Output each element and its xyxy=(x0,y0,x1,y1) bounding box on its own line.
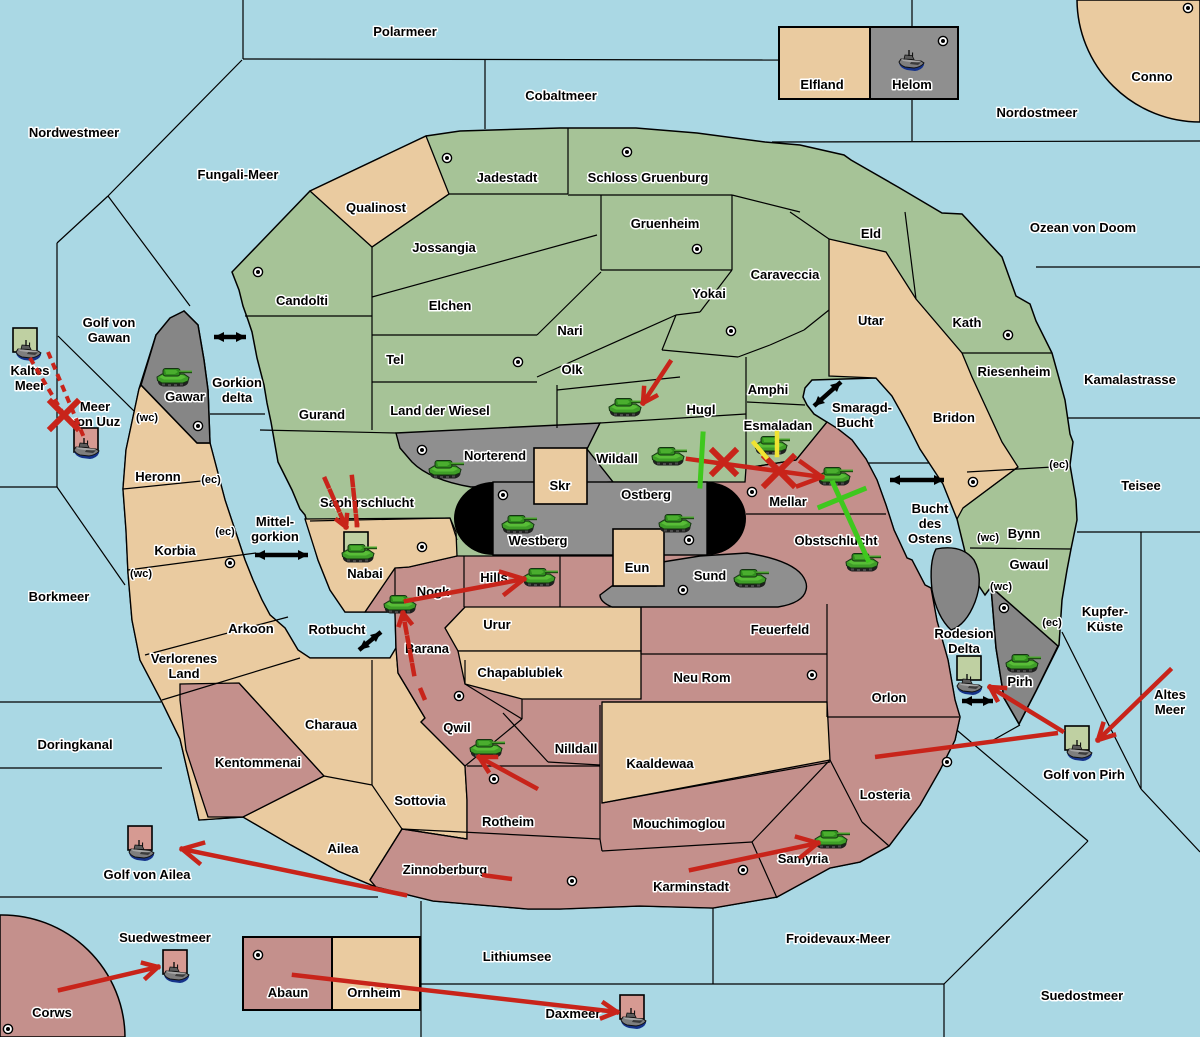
svg-text:Mouchimoglou: Mouchimoglou xyxy=(633,816,725,831)
svg-text:Land der Wiesel: Land der Wiesel xyxy=(390,403,490,418)
svg-text:Kaltes: Kaltes xyxy=(10,363,49,378)
svg-text:Tel: Tel xyxy=(386,352,404,367)
svg-text:gorkion: gorkion xyxy=(251,529,299,544)
svg-text:Bucht: Bucht xyxy=(837,415,875,430)
svg-text:Kupfer-: Kupfer- xyxy=(1082,604,1128,619)
svg-text:Delta: Delta xyxy=(948,641,981,656)
svg-text:Conno: Conno xyxy=(1131,69,1172,84)
svg-text:Smaragd-: Smaragd- xyxy=(832,400,892,415)
svg-text:Gruenheim: Gruenheim xyxy=(631,216,700,231)
svg-text:Meer: Meer xyxy=(15,378,45,393)
svg-text:Kaaldewaa: Kaaldewaa xyxy=(626,756,694,771)
svg-text:Neu Rom: Neu Rom xyxy=(673,670,730,685)
svg-text:(wc): (wc) xyxy=(136,412,158,424)
svg-text:Wildall: Wildall xyxy=(596,451,638,466)
svg-text:Teisee: Teisee xyxy=(1121,478,1161,493)
svg-text:Doringkanal: Doringkanal xyxy=(37,737,112,752)
svg-text:Schloss Gruenburg: Schloss Gruenburg xyxy=(588,170,709,185)
svg-text:Borkmeer: Borkmeer xyxy=(29,589,90,604)
svg-text:Qualinost: Qualinost xyxy=(346,200,407,215)
svg-text:Gurand: Gurand xyxy=(299,407,345,422)
svg-text:Mellar: Mellar xyxy=(769,494,807,509)
svg-text:(wc): (wc) xyxy=(990,581,1012,593)
svg-text:Nari: Nari xyxy=(557,323,582,338)
svg-text:Hugl: Hugl xyxy=(687,402,716,417)
svg-text:Bucht: Bucht xyxy=(912,501,950,516)
svg-text:Froidevaux-Meer: Froidevaux-Meer xyxy=(786,931,890,946)
svg-text:Korbia: Korbia xyxy=(154,543,196,558)
svg-text:Bridon: Bridon xyxy=(933,410,975,425)
svg-text:Rodesion: Rodesion xyxy=(934,626,993,641)
svg-text:(ec): (ec) xyxy=(201,474,221,486)
svg-text:Orlon: Orlon xyxy=(872,690,907,705)
svg-text:Qwil: Qwil xyxy=(443,720,470,735)
svg-text:Chapablublek: Chapablublek xyxy=(477,665,563,680)
svg-text:Nilldall: Nilldall xyxy=(555,741,598,756)
svg-text:Yokai: Yokai xyxy=(692,286,726,301)
svg-text:Amphi: Amphi xyxy=(748,382,788,397)
svg-text:Polarmeer: Polarmeer xyxy=(373,24,437,39)
svg-text:Land: Land xyxy=(168,666,199,681)
svg-text:Caraveccia: Caraveccia xyxy=(751,267,820,282)
svg-text:Urur: Urur xyxy=(483,617,510,632)
svg-text:Nabai: Nabai xyxy=(347,566,382,581)
svg-text:(wc): (wc) xyxy=(977,532,999,544)
svg-text:Gawar: Gawar xyxy=(165,389,205,404)
svg-text:Suedostmeer: Suedostmeer xyxy=(1041,988,1123,1003)
svg-text:Sund: Sund xyxy=(694,568,727,583)
svg-text:Elfland: Elfland xyxy=(800,77,843,92)
svg-text:Kamalastrasse: Kamalastrasse xyxy=(1084,372,1176,387)
svg-text:Eun: Eun xyxy=(625,560,650,575)
svg-text:Utar: Utar xyxy=(858,313,884,328)
svg-text:Bynn: Bynn xyxy=(1008,526,1041,541)
svg-text:Meer: Meer xyxy=(80,399,110,414)
svg-text:Westberg: Westberg xyxy=(509,533,568,548)
svg-text:Rotheim: Rotheim xyxy=(482,814,534,829)
svg-text:Cobaltmeer: Cobaltmeer xyxy=(525,88,597,103)
svg-text:Meer: Meer xyxy=(1155,702,1185,717)
svg-text:Ailea: Ailea xyxy=(327,841,359,856)
svg-text:Rotbucht: Rotbucht xyxy=(308,622,366,637)
svg-text:Altes: Altes xyxy=(1154,687,1186,702)
svg-text:Nordostmeer: Nordostmeer xyxy=(997,105,1078,120)
svg-text:Mittel-: Mittel- xyxy=(256,514,294,529)
svg-text:Gorkion: Gorkion xyxy=(212,375,262,390)
svg-text:Skr: Skr xyxy=(550,478,571,493)
svg-text:Pirh: Pirh xyxy=(1007,674,1032,689)
svg-text:Norterend: Norterend xyxy=(464,448,526,463)
svg-text:Zinnoberburg: Zinnoberburg xyxy=(403,862,488,877)
svg-text:Fungali-Meer: Fungali-Meer xyxy=(198,167,279,182)
svg-text:Ostens: Ostens xyxy=(908,531,952,546)
svg-text:Olk: Olk xyxy=(562,362,584,377)
svg-text:Suedwestmeer: Suedwestmeer xyxy=(119,930,211,945)
svg-text:Gwaul: Gwaul xyxy=(1009,557,1048,572)
svg-text:Helom: Helom xyxy=(892,77,932,92)
svg-text:Heronn: Heronn xyxy=(135,469,181,484)
svg-text:Küste: Küste xyxy=(1087,619,1123,634)
svg-text:(ec): (ec) xyxy=(1049,459,1069,471)
svg-text:Golf von Pirh: Golf von Pirh xyxy=(1043,767,1125,782)
svg-text:Gawan: Gawan xyxy=(88,330,131,345)
svg-text:Ostberg: Ostberg xyxy=(621,487,671,502)
svg-text:Eld: Eld xyxy=(861,226,881,241)
svg-text:Golf von: Golf von xyxy=(83,315,136,330)
svg-text:(ec): (ec) xyxy=(215,526,235,538)
svg-text:Kentommenai: Kentommenai xyxy=(215,755,301,770)
svg-text:Sottovia: Sottovia xyxy=(394,793,446,808)
svg-text:des: des xyxy=(919,516,941,531)
svg-text:Abaun: Abaun xyxy=(268,985,309,1000)
svg-text:Kath: Kath xyxy=(953,315,982,330)
svg-text:Charaua: Charaua xyxy=(305,717,358,732)
svg-text:Karminstadt: Karminstadt xyxy=(653,879,730,894)
svg-text:(wc): (wc) xyxy=(130,568,152,580)
svg-text:Elchen: Elchen xyxy=(429,298,472,313)
svg-text:Corws: Corws xyxy=(32,1005,72,1020)
svg-text:Arkoon: Arkoon xyxy=(228,621,274,636)
svg-text:Ozean von Doom: Ozean von Doom xyxy=(1030,220,1136,235)
svg-text:(ec): (ec) xyxy=(1042,617,1062,629)
svg-text:Jadestadt: Jadestadt xyxy=(477,170,538,185)
svg-text:Jossangia: Jossangia xyxy=(412,240,476,255)
svg-text:Losteria: Losteria xyxy=(860,787,911,802)
svg-text:Obstschlucht: Obstschlucht xyxy=(794,533,878,548)
svg-text:delta: delta xyxy=(222,390,253,405)
svg-text:Nordwestmeer: Nordwestmeer xyxy=(29,125,119,140)
svg-text:Lithiumsee: Lithiumsee xyxy=(483,949,552,964)
svg-text:Riesenheim: Riesenheim xyxy=(978,364,1051,379)
svg-text:Verlorenes: Verlorenes xyxy=(151,651,218,666)
svg-text:Feuerfeld: Feuerfeld xyxy=(751,622,810,637)
svg-text:Candolti: Candolti xyxy=(276,293,328,308)
svg-text:Golf von Ailea: Golf von Ailea xyxy=(104,867,192,882)
